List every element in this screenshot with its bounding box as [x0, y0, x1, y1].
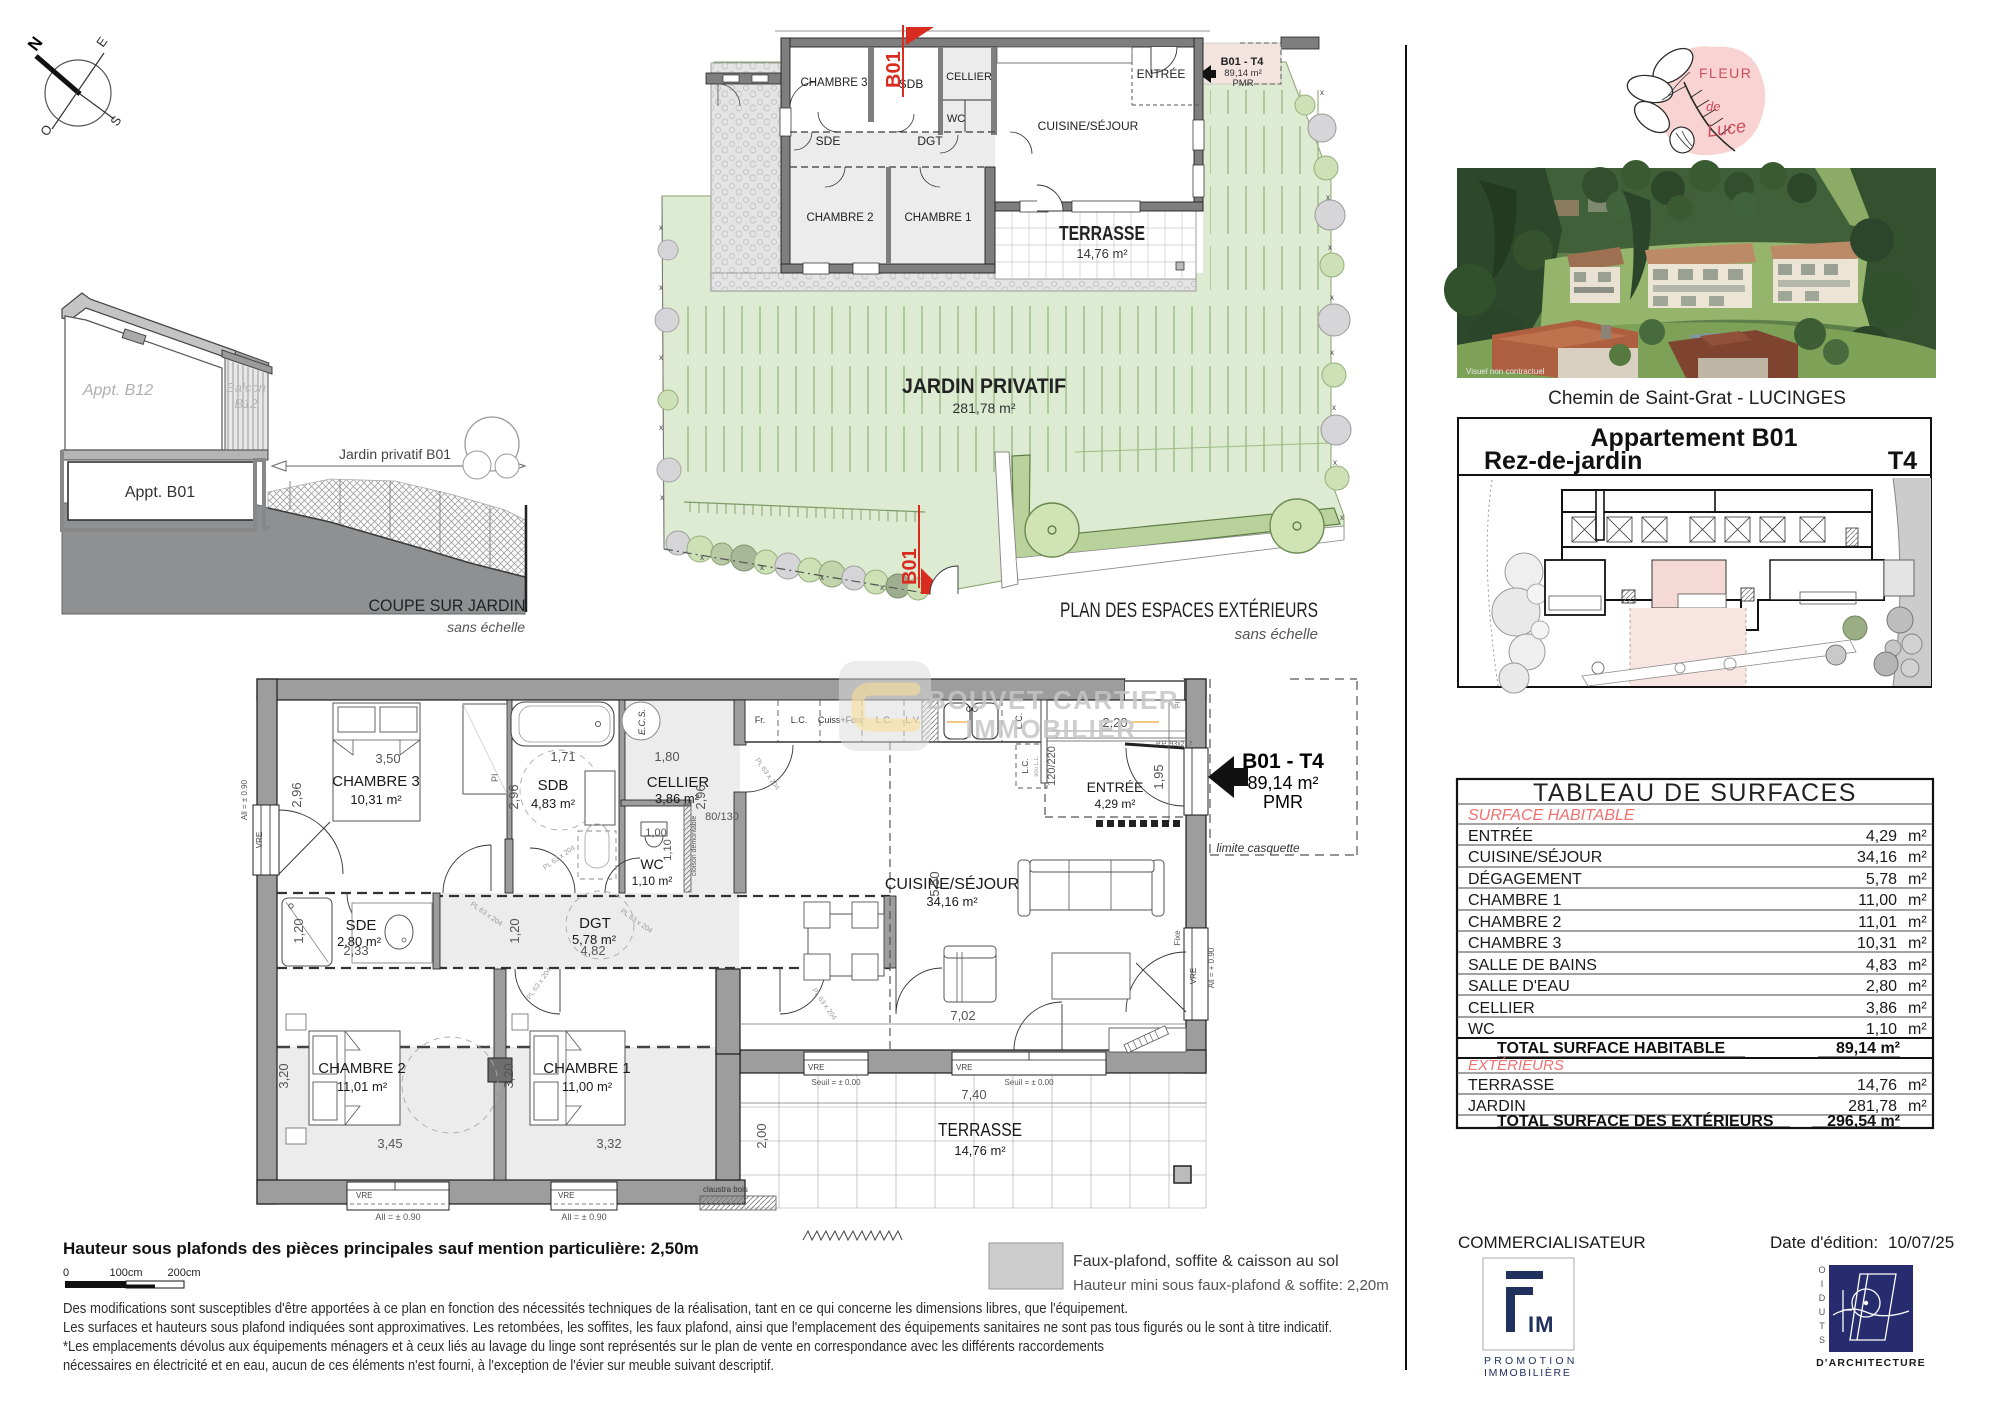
svg-text:FLEUR: FLEUR	[1699, 65, 1752, 81]
svg-text:x: x	[1330, 293, 1334, 302]
svg-text:B01 - T4: B01 - T4	[1221, 56, 1265, 68]
svg-text:x: x	[659, 223, 663, 232]
svg-text:100cm: 100cm	[109, 1267, 142, 1279]
svg-text:O: O	[1818, 1265, 1825, 1275]
svg-text:10,31: 10,31	[1857, 935, 1897, 952]
svg-text:I: I	[1821, 1279, 1824, 1289]
svg-text:Rez-de-jardin: Rez-de-jardin	[1484, 447, 1642, 475]
svg-text:x: x	[880, 583, 884, 592]
svg-text:Hauteur sous plafonds des pièc: Hauteur sous plafonds des pièces princip…	[63, 1239, 699, 1258]
svg-text:Appt. B12: Appt. B12	[82, 382, 153, 399]
svg-text:sans échelle: sans échelle	[1235, 626, 1318, 643]
svg-text:m²: m²	[1908, 914, 1927, 931]
svg-text:WC: WC	[947, 113, 965, 125]
svg-text:CUISINE/SÉJOUR: CUISINE/SÉJOUR	[1038, 118, 1139, 133]
svg-text:S: S	[107, 113, 124, 129]
svg-text:CHAMBRE 2: CHAMBRE 2	[1468, 914, 1561, 931]
svg-text:x: x	[1333, 458, 1337, 467]
svg-text:CHAMBRE 3: CHAMBRE 3	[800, 77, 867, 89]
svg-text:CHAMBRE 2: CHAMBRE 2	[806, 212, 873, 224]
svg-text:VRE: VRE	[356, 1191, 372, 1200]
svg-text:x: x	[659, 423, 663, 432]
svg-text:Visuel non contractuel: Visuel non contractuel	[1466, 367, 1545, 376]
svg-text:PMR: PMR	[1232, 78, 1253, 89]
svg-text:4,83 m²: 4,83 m²	[531, 796, 576, 811]
svg-text:CELLIER: CELLIER	[946, 71, 992, 83]
svg-text:*Les emplacements dévolus aux: *Les emplacements dévolus aux équipement…	[63, 1338, 1104, 1355]
svg-text:m²: m²	[1908, 871, 1927, 888]
svg-text:SDE: SDE	[346, 917, 377, 934]
svg-text:Date d'édition:: Date d'édition:	[1770, 1233, 1878, 1252]
svg-text:CHAMBRE 3: CHAMBRE 3	[332, 773, 420, 790]
svg-text:IMMOBILIER: IMMOBILIER	[966, 714, 1137, 744]
svg-text:VRE: VRE	[1189, 968, 1198, 984]
svg-text:1,80: 1,80	[654, 749, 679, 764]
svg-text:All = ± 0.90: All = ± 0.90	[561, 1212, 606, 1222]
svg-text:11,00: 11,00	[1858, 892, 1897, 909]
svg-text:120/220: 120/220	[1046, 746, 1058, 786]
svg-text:5,78: 5,78	[1866, 871, 1897, 888]
svg-text:VRE: VRE	[255, 832, 264, 848]
svg-text:cloison démontable: cloison démontable	[691, 816, 698, 876]
svg-text:CUISINE/SÉJOUR: CUISINE/SÉJOUR	[885, 874, 1019, 893]
svg-text:TERRASSE: TERRASSE	[938, 1120, 1022, 1140]
svg-text:3,20: 3,20	[501, 1063, 516, 1088]
svg-text:COMMERCIALISATEUR: COMMERCIALISATEUR	[1458, 1233, 1646, 1252]
svg-text:Jardin privatif B01: Jardin privatif B01	[339, 446, 451, 462]
svg-text:SDB: SDB	[538, 777, 569, 794]
svg-text:x: x	[760, 563, 764, 572]
svg-text:CELLIER: CELLIER	[1468, 1000, 1535, 1017]
svg-text:O: O	[37, 122, 55, 139]
svg-text:m²: m²	[1908, 1000, 1927, 1017]
svg-text:CHAMBRE 3: CHAMBRE 3	[1468, 935, 1561, 952]
svg-text:TERRASSE: TERRASSE	[1059, 223, 1145, 245]
svg-text:SDE: SDE	[816, 134, 841, 148]
svg-text:WC: WC	[640, 856, 663, 872]
svg-text:2,96: 2,96	[693, 784, 708, 809]
svg-text:BOUVET CARTIER: BOUVET CARTIER	[927, 685, 1179, 715]
svg-text:CUISINE/SÉJOUR: CUISINE/SÉJOUR	[1468, 847, 1602, 866]
svg-text:89,14 m²: 89,14 m²	[1836, 1040, 1900, 1057]
svg-text:7,02: 7,02	[950, 1008, 975, 1023]
svg-text:3,20: 3,20	[276, 1063, 291, 1088]
svg-text:m²: m²	[1908, 1077, 1927, 1094]
svg-text:1,71: 1,71	[550, 749, 575, 764]
svg-text:TABLEAU DE SURFACES: TABLEAU DE SURFACES	[1533, 779, 1857, 807]
svg-text:CHAMBRE 1: CHAMBRE 1	[904, 212, 971, 224]
svg-text:2,00: 2,00	[754, 1123, 769, 1148]
svg-text:m²: m²	[1908, 957, 1927, 974]
svg-text:sans échelle: sans échelle	[447, 619, 525, 635]
svg-text:5,50: 5,50	[927, 871, 942, 896]
svg-text:Seuil = ± 0.00: Seuil = ± 0.00	[1004, 1078, 1054, 1087]
svg-text:PI: PI	[490, 773, 500, 782]
svg-text:10,31 m²: 10,31 m²	[350, 792, 402, 807]
svg-text:IM: IM	[1528, 1312, 1554, 1337]
svg-text:SALLE D'EAU: SALLE D'EAU	[1468, 978, 1570, 995]
svg-text:2,33: 2,33	[343, 943, 368, 958]
svg-text:SALLE DE BAINS: SALLE DE BAINS	[1468, 957, 1597, 974]
svg-text:x: x	[1320, 88, 1324, 97]
svg-text:PLAN DES ESPACES EXTÉRIEURS: PLAN DES ESPACES EXTÉRIEURS	[1060, 599, 1318, 622]
svg-text:TERRASSE: TERRASSE	[1468, 1077, 1554, 1094]
svg-text:m²: m²	[1908, 935, 1927, 952]
svg-text:de: de	[1706, 99, 1720, 114]
svg-text:All = ± 0.90: All = ± 0.90	[375, 1212, 420, 1222]
svg-text:PROMOTION: PROMOTION	[1484, 1355, 1578, 1367]
svg-text:TOTAL SURFACE HABITABLE: TOTAL SURFACE HABITABLE	[1497, 1040, 1725, 1057]
svg-text:DGT: DGT	[579, 915, 611, 932]
svg-text:1,20: 1,20	[507, 918, 522, 943]
svg-text:0: 0	[63, 1267, 69, 1279]
svg-text:m²: m²	[1908, 849, 1927, 866]
svg-text:x: x	[1328, 243, 1332, 252]
svg-text:x: x	[1332, 403, 1336, 412]
svg-text:L.C.: L.C.	[791, 715, 808, 725]
svg-text:JARDIN PRIVATIF: JARDIN PRIVATIF	[902, 375, 1066, 398]
svg-text:11,01: 11,01	[1858, 914, 1897, 931]
svg-text:VRE: VRE	[558, 1191, 574, 1200]
svg-text:1,20: 1,20	[291, 918, 306, 943]
svg-text:S: S	[1819, 1335, 1825, 1345]
svg-text:2,96: 2,96	[289, 782, 304, 807]
svg-text:m²: m²	[1908, 1098, 1927, 1115]
svg-text:COUPE SUR JARDIN: COUPE SUR JARDIN	[369, 596, 526, 615]
svg-text:Appt. B01: Appt. B01	[125, 484, 195, 501]
svg-text:PMR: PMR	[1263, 792, 1303, 812]
svg-text:11,01 m²: 11,01 m²	[337, 1079, 388, 1094]
svg-text:200cm: 200cm	[167, 1267, 200, 1279]
svg-text:EXTÉRIEURS: EXTÉRIEURS	[1468, 1057, 1564, 1074]
svg-text:x: x	[1340, 513, 1344, 522]
svg-text:14,76: 14,76	[1857, 1077, 1897, 1094]
svg-text:m²: m²	[1908, 892, 1927, 909]
svg-text:11,00 m²: 11,00 m²	[562, 1079, 613, 1094]
svg-text:1,00: 1,00	[645, 827, 666, 839]
svg-text:2,96: 2,96	[506, 784, 521, 809]
svg-text:3,50: 3,50	[375, 751, 400, 766]
svg-text:IMMOBILIÈRE: IMMOBILIÈRE	[1484, 1366, 1572, 1379]
svg-text:D: D	[1819, 1293, 1826, 1303]
svg-text:Balcon: Balcon	[226, 380, 266, 395]
svg-text:x: x	[659, 283, 663, 292]
svg-text:14,76 m²: 14,76 m²	[1076, 246, 1128, 261]
svg-text:N: N	[24, 33, 47, 54]
svg-text:m²: m²	[1908, 1021, 1927, 1038]
svg-text:281,78 m²: 281,78 m²	[952, 400, 1015, 416]
svg-text:Hauteur mini sous faux-plafond: Hauteur mini sous faux-plafond & soffite…	[1073, 1277, 1389, 1294]
svg-text:3,32: 3,32	[596, 1136, 621, 1151]
svg-text:ENTRÉE: ENTRÉE	[1137, 66, 1186, 81]
svg-text:B01: B01	[899, 548, 921, 585]
svg-text:1,95: 1,95	[1151, 764, 1166, 789]
svg-text:Faux-plafond, soffite & caisso: Faux-plafond, soffite & caisson au sol	[1073, 1253, 1339, 1270]
svg-text:Fr.: Fr.	[755, 715, 766, 725]
svg-text:ENTRÉE: ENTRÉE	[1468, 826, 1533, 845]
svg-text:VRE: VRE	[956, 1063, 972, 1072]
svg-text:4,83: 4,83	[1866, 957, 1897, 974]
svg-text:m²: m²	[1908, 978, 1927, 995]
svg-text:89,14 m²: 89,14 m²	[1247, 773, 1318, 793]
svg-text:VRE: VRE	[808, 1063, 824, 1072]
svg-text:CHAMBRE 1: CHAMBRE 1	[1468, 892, 1561, 909]
svg-text:P.P. 93x217: P.P. 93x217	[1156, 741, 1192, 748]
svg-text:CHAMBRE 2: CHAMBRE 2	[318, 1060, 406, 1077]
svg-text:x: x	[700, 553, 704, 562]
svg-text:CHAMBRE 1: CHAMBRE 1	[543, 1060, 631, 1077]
svg-text:D'ARCHITECTURE: D'ARCHITECTURE	[1816, 1357, 1926, 1369]
svg-text:3,45: 3,45	[377, 1136, 402, 1151]
svg-text:x: x	[1330, 348, 1334, 357]
svg-text:34,16: 34,16	[1857, 849, 1897, 866]
svg-text:E.C.S.: E.C.S.	[637, 709, 647, 735]
svg-text:claustra bois: claustra bois	[703, 1185, 748, 1194]
svg-text:4,29 m²: 4,29 m²	[1095, 797, 1136, 811]
svg-text:Chemin de Saint-Grat - LUCINGE: Chemin de Saint-Grat - LUCINGES	[1548, 388, 1846, 409]
svg-text:nécessaires en électricité et: nécessaires en électricité et en eau, au…	[63, 1357, 774, 1374]
svg-text:B01 - T4: B01 - T4	[1242, 750, 1324, 773]
svg-text:4,82: 4,82	[580, 943, 605, 958]
svg-text:limite casquette: limite casquette	[1216, 841, 1300, 855]
svg-text:DGT: DGT	[917, 134, 943, 148]
svg-text:x: x	[1326, 193, 1330, 202]
svg-text:ENTRÉE: ENTRÉE	[1087, 779, 1144, 795]
svg-text:L.C.: L.C.	[1021, 759, 1030, 774]
svg-text:x: x	[820, 573, 824, 582]
svg-text:T: T	[1819, 1321, 1825, 1331]
svg-text:Des modifications sont suscept: Des modifications sont susceptibles d'êt…	[63, 1300, 1128, 1317]
svg-text:x: x	[660, 493, 664, 502]
svg-text:1,10: 1,10	[662, 839, 674, 860]
svg-text:7,40: 7,40	[961, 1087, 986, 1102]
svg-text:4,29: 4,29	[1866, 828, 1897, 845]
svg-text:DÉGAGEMENT: DÉGAGEMENT	[1468, 869, 1582, 888]
svg-text:Les surfaces et hauteurs sous: Les surfaces et hauteurs sous plafond in…	[63, 1319, 1332, 1336]
svg-text:SURFACE HABITABLE: SURFACE HABITABLE	[1468, 807, 1635, 824]
svg-text:10/07/25: 10/07/25	[1888, 1233, 1954, 1252]
svg-text:1,10: 1,10	[1866, 1021, 1897, 1038]
svg-text:m²: m²	[1908, 828, 1927, 845]
svg-text:1,10 m²: 1,10 m²	[632, 874, 673, 888]
svg-text:14,76 m²: 14,76 m²	[954, 1143, 1006, 1158]
svg-text:B12: B12	[234, 396, 258, 411]
svg-text:Fixe: Fixe	[1173, 930, 1182, 946]
svg-text:B01: B01	[883, 51, 905, 88]
svg-text:3,86: 3,86	[1866, 1000, 1897, 1017]
svg-text:All = + 0.90: All = + 0.90	[1207, 947, 1216, 988]
svg-text:T4: T4	[1888, 447, 1917, 475]
svg-text:sou L.L.: sou L.L.	[1034, 755, 1040, 777]
svg-text:80/130: 80/130	[705, 811, 739, 823]
svg-text:E: E	[93, 34, 110, 50]
svg-text:x: x	[659, 353, 663, 362]
svg-text:Seuil = ± 0.00: Seuil = ± 0.00	[811, 1078, 861, 1087]
svg-text:U: U	[1819, 1307, 1826, 1317]
svg-text:All = ± 0.90: All = ± 0.90	[240, 779, 249, 820]
svg-text:WC: WC	[1468, 1021, 1495, 1038]
svg-text:2,80: 2,80	[1866, 978, 1897, 995]
